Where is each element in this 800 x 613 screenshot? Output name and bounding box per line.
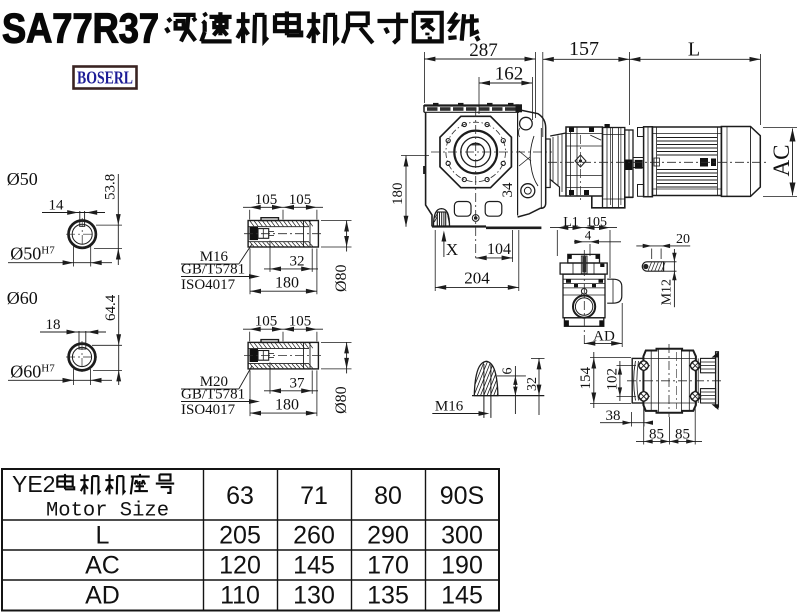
svg-text:32: 32 xyxy=(525,377,540,391)
svg-text:ISO4017: ISO4017 xyxy=(181,402,236,418)
svg-text:102: 102 xyxy=(604,368,620,391)
svg-text:Motor Size: Motor Size xyxy=(46,500,169,523)
svg-text:M16: M16 xyxy=(435,399,464,415)
svg-text:85: 85 xyxy=(649,427,664,443)
svg-text:M12: M12 xyxy=(660,279,675,305)
svg-text:180: 180 xyxy=(275,275,299,292)
svg-text:154: 154 xyxy=(578,367,594,390)
svg-text:157: 157 xyxy=(569,38,599,60)
svg-text:6: 6 xyxy=(501,368,516,375)
svg-text:4: 4 xyxy=(585,227,592,242)
svg-text:90S: 90S xyxy=(440,482,484,510)
svg-text:L1: L1 xyxy=(563,215,579,230)
svg-text:260: 260 xyxy=(293,522,335,550)
svg-text:145: 145 xyxy=(441,582,483,610)
svg-text:YE2: YE2 xyxy=(12,471,55,497)
svg-text:AC: AC xyxy=(85,552,120,580)
svg-text:290: 290 xyxy=(367,522,409,550)
svg-text:L: L xyxy=(688,39,700,61)
svg-text:Ø50: Ø50 xyxy=(7,169,38,189)
svg-text:AD: AD xyxy=(85,582,120,610)
svg-text:105: 105 xyxy=(289,314,312,330)
svg-text:104: 104 xyxy=(487,241,511,258)
svg-text:32: 32 xyxy=(290,253,305,269)
svg-text:Ø80: Ø80 xyxy=(333,264,350,292)
svg-text:190: 190 xyxy=(441,552,483,580)
svg-text:AD: AD xyxy=(593,329,615,345)
svg-text:287: 287 xyxy=(469,40,498,61)
svg-text:105: 105 xyxy=(255,314,278,330)
svg-text:53.8: 53.8 xyxy=(103,174,119,200)
svg-text:145: 145 xyxy=(293,552,335,580)
svg-text:105: 105 xyxy=(289,192,312,208)
svg-text:GB/T5781: GB/T5781 xyxy=(181,387,245,403)
svg-text:80: 80 xyxy=(374,482,402,510)
svg-text:85: 85 xyxy=(675,427,690,443)
svg-text:170: 170 xyxy=(367,552,409,580)
svg-text:X: X xyxy=(446,240,458,259)
svg-text:Ø80: Ø80 xyxy=(333,386,350,414)
svg-text:GB/T5781: GB/T5781 xyxy=(181,262,245,278)
svg-text:14: 14 xyxy=(49,198,65,214)
svg-text:L: L xyxy=(96,522,110,550)
svg-text:110: 110 xyxy=(220,582,260,610)
svg-text:71: 71 xyxy=(300,482,328,510)
svg-text:ISO4017: ISO4017 xyxy=(181,277,236,293)
svg-text:BOSERL: BOSERL xyxy=(77,68,133,88)
svg-text:64.4: 64.4 xyxy=(103,294,119,321)
svg-text:162: 162 xyxy=(495,64,524,85)
svg-text:34: 34 xyxy=(500,182,516,198)
svg-text:180: 180 xyxy=(275,397,299,414)
svg-text:18: 18 xyxy=(46,317,61,333)
svg-text:135: 135 xyxy=(367,582,409,610)
svg-text:AC: AC xyxy=(769,145,794,177)
svg-text:120: 120 xyxy=(219,552,261,580)
svg-text:38: 38 xyxy=(606,408,621,424)
svg-text:Ø60: Ø60 xyxy=(7,288,38,308)
svg-text:130: 130 xyxy=(293,582,335,610)
svg-text:204: 204 xyxy=(464,269,490,288)
svg-text:180: 180 xyxy=(390,183,406,206)
svg-text:SA77R37: SA77R37 xyxy=(2,5,159,52)
svg-text:205: 205 xyxy=(219,522,261,550)
svg-text:63: 63 xyxy=(226,482,254,510)
svg-text:105: 105 xyxy=(255,192,278,208)
svg-text:20: 20 xyxy=(676,232,690,247)
svg-text:37: 37 xyxy=(290,375,306,391)
svg-text:300: 300 xyxy=(441,522,483,550)
